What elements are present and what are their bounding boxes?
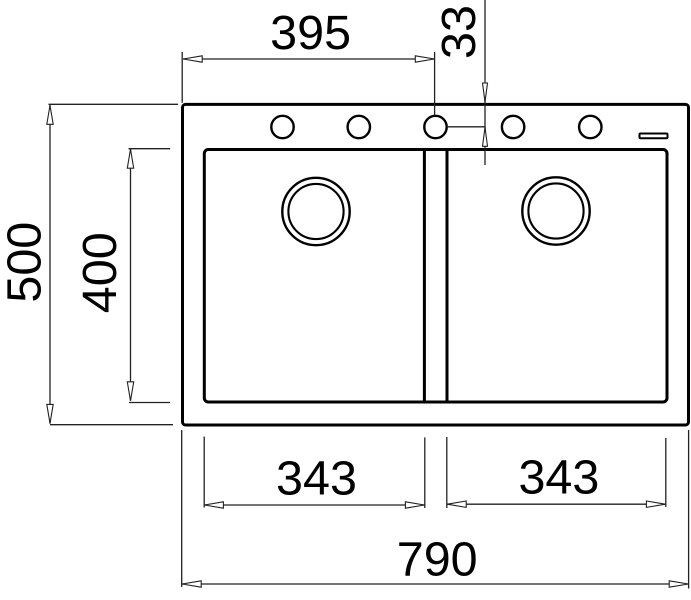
svg-text:343: 343: [518, 450, 599, 504]
svg-text:343: 343: [276, 452, 357, 506]
svg-text:500: 500: [0, 222, 52, 303]
svg-text:395: 395: [270, 6, 351, 60]
svg-text:400: 400: [73, 232, 127, 313]
svg-text:33: 33: [432, 5, 486, 59]
svg-text:790: 790: [397, 533, 478, 587]
